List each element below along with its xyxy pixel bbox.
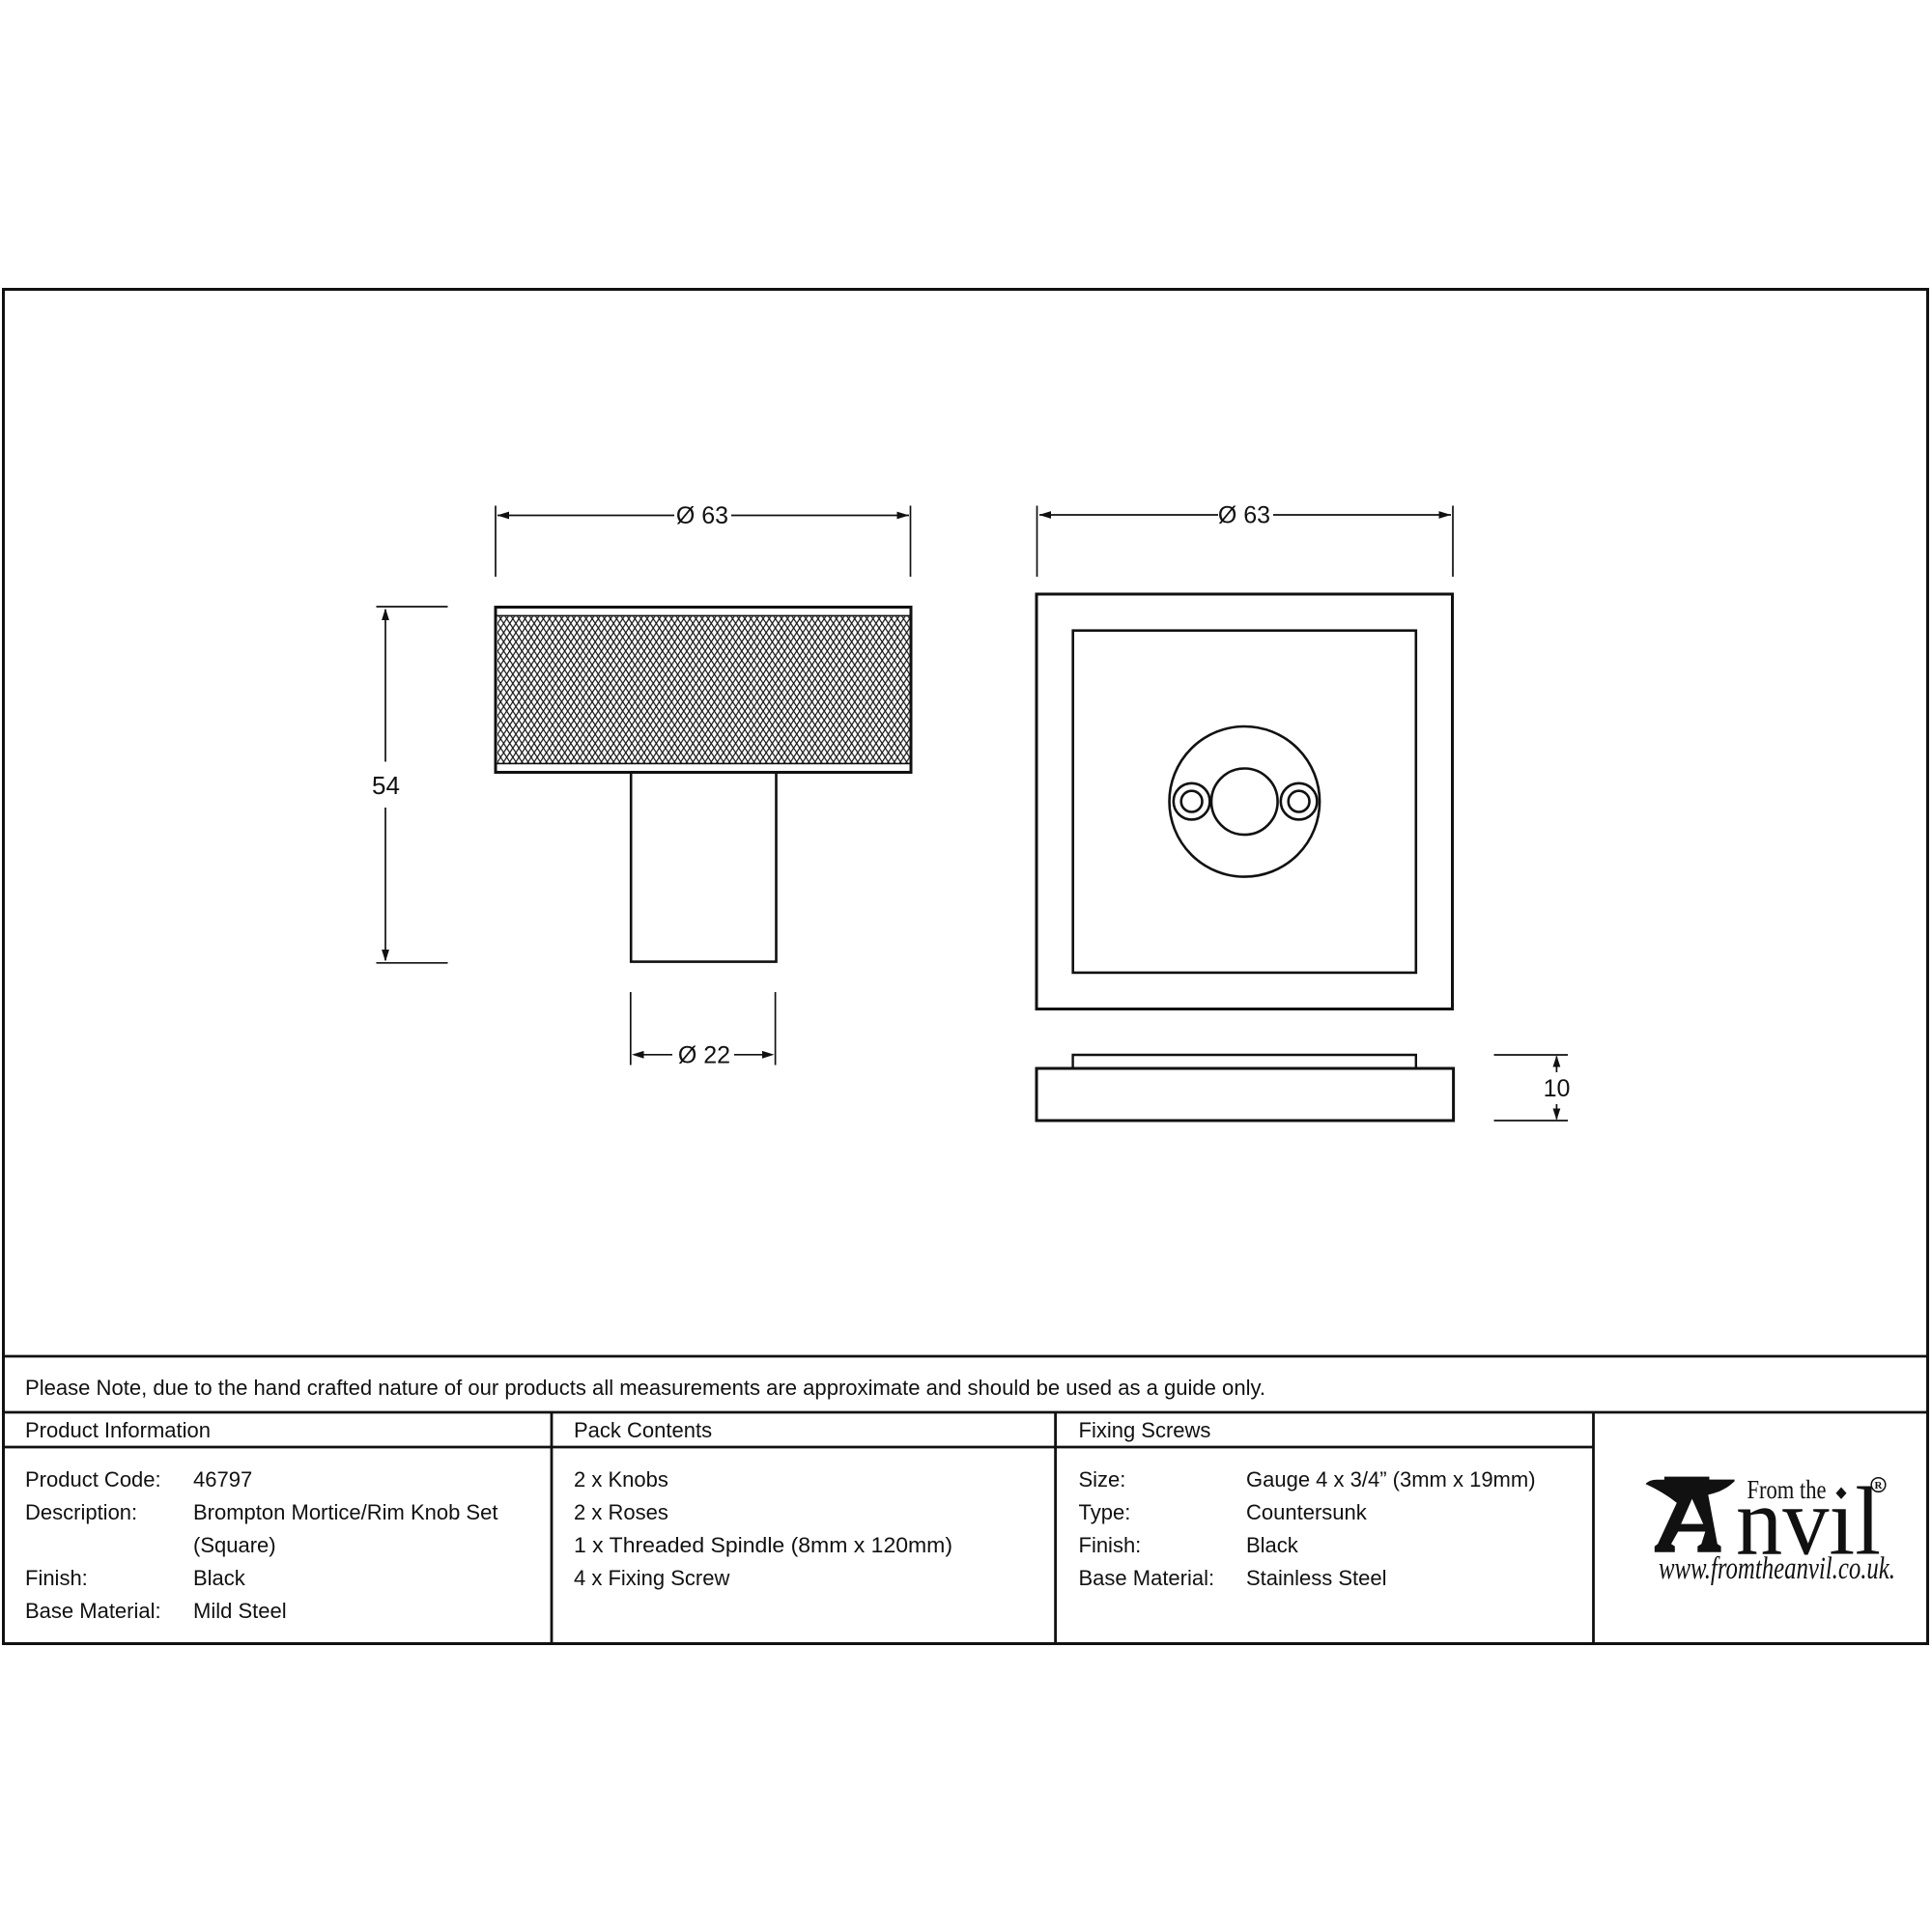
svg-text:10: 10	[1544, 1075, 1571, 1102]
svg-text:(Square): (Square)	[193, 1533, 276, 1557]
svg-text:Stainless Steel: Stainless Steel	[1246, 1566, 1387, 1590]
svg-text:Description:: Description:	[25, 1500, 137, 1524]
svg-text:2 x Roses: 2 x Roses	[574, 1500, 668, 1524]
svg-text:2 x Knobs: 2 x Knobs	[574, 1467, 668, 1492]
svg-text:Product Information: Product Information	[25, 1418, 211, 1442]
svg-text:Please Note, due to the hand c: Please Note, due to the hand crafted nat…	[25, 1376, 1265, 1400]
svg-text:4 x Fixing Screw: 4 x Fixing Screw	[574, 1566, 729, 1590]
svg-text:Type:: Type:	[1079, 1500, 1131, 1524]
svg-text:Brompton Mortice/Rim Knob Set: Brompton Mortice/Rim Knob Set	[193, 1500, 497, 1524]
svg-text:Mild Steel: Mild Steel	[193, 1599, 287, 1623]
svg-text:46797: 46797	[193, 1467, 252, 1492]
svg-text:Base Material:: Base Material:	[1079, 1566, 1215, 1590]
svg-text:Base Material:: Base Material:	[25, 1599, 161, 1623]
svg-text:www.fromtheanvil.co.uk.: www.fromtheanvil.co.uk.	[1659, 1551, 1895, 1586]
svg-text:1 x Threaded Spindle (8mm x 12: 1 x Threaded Spindle (8mm x 120mm)	[574, 1533, 952, 1557]
svg-text:Size:: Size:	[1079, 1467, 1126, 1492]
svg-text:Countersunk: Countersunk	[1246, 1500, 1368, 1524]
svg-text:Fixing Screws: Fixing Screws	[1079, 1418, 1211, 1442]
svg-text:54: 54	[372, 771, 400, 800]
svg-text:Black: Black	[193, 1566, 246, 1590]
svg-text:Ø 63: Ø 63	[676, 502, 728, 529]
svg-text:From the: From the	[1747, 1475, 1827, 1504]
svg-text:Ø 22: Ø 22	[678, 1041, 730, 1068]
svg-text:Product Code:: Product Code:	[25, 1467, 161, 1492]
svg-text:Pack Contents: Pack Contents	[574, 1418, 712, 1442]
svg-text:Gauge 4 x 3/4” (3mm x 19mm): Gauge 4 x 3/4” (3mm x 19mm)	[1246, 1467, 1536, 1492]
svg-text:R: R	[1875, 1480, 1884, 1492]
svg-text:Black: Black	[1246, 1533, 1299, 1557]
svg-text:Ø 63: Ø 63	[1218, 502, 1270, 529]
svg-text:Finish:: Finish:	[25, 1566, 88, 1590]
svg-text:Finish:: Finish:	[1079, 1533, 1142, 1557]
